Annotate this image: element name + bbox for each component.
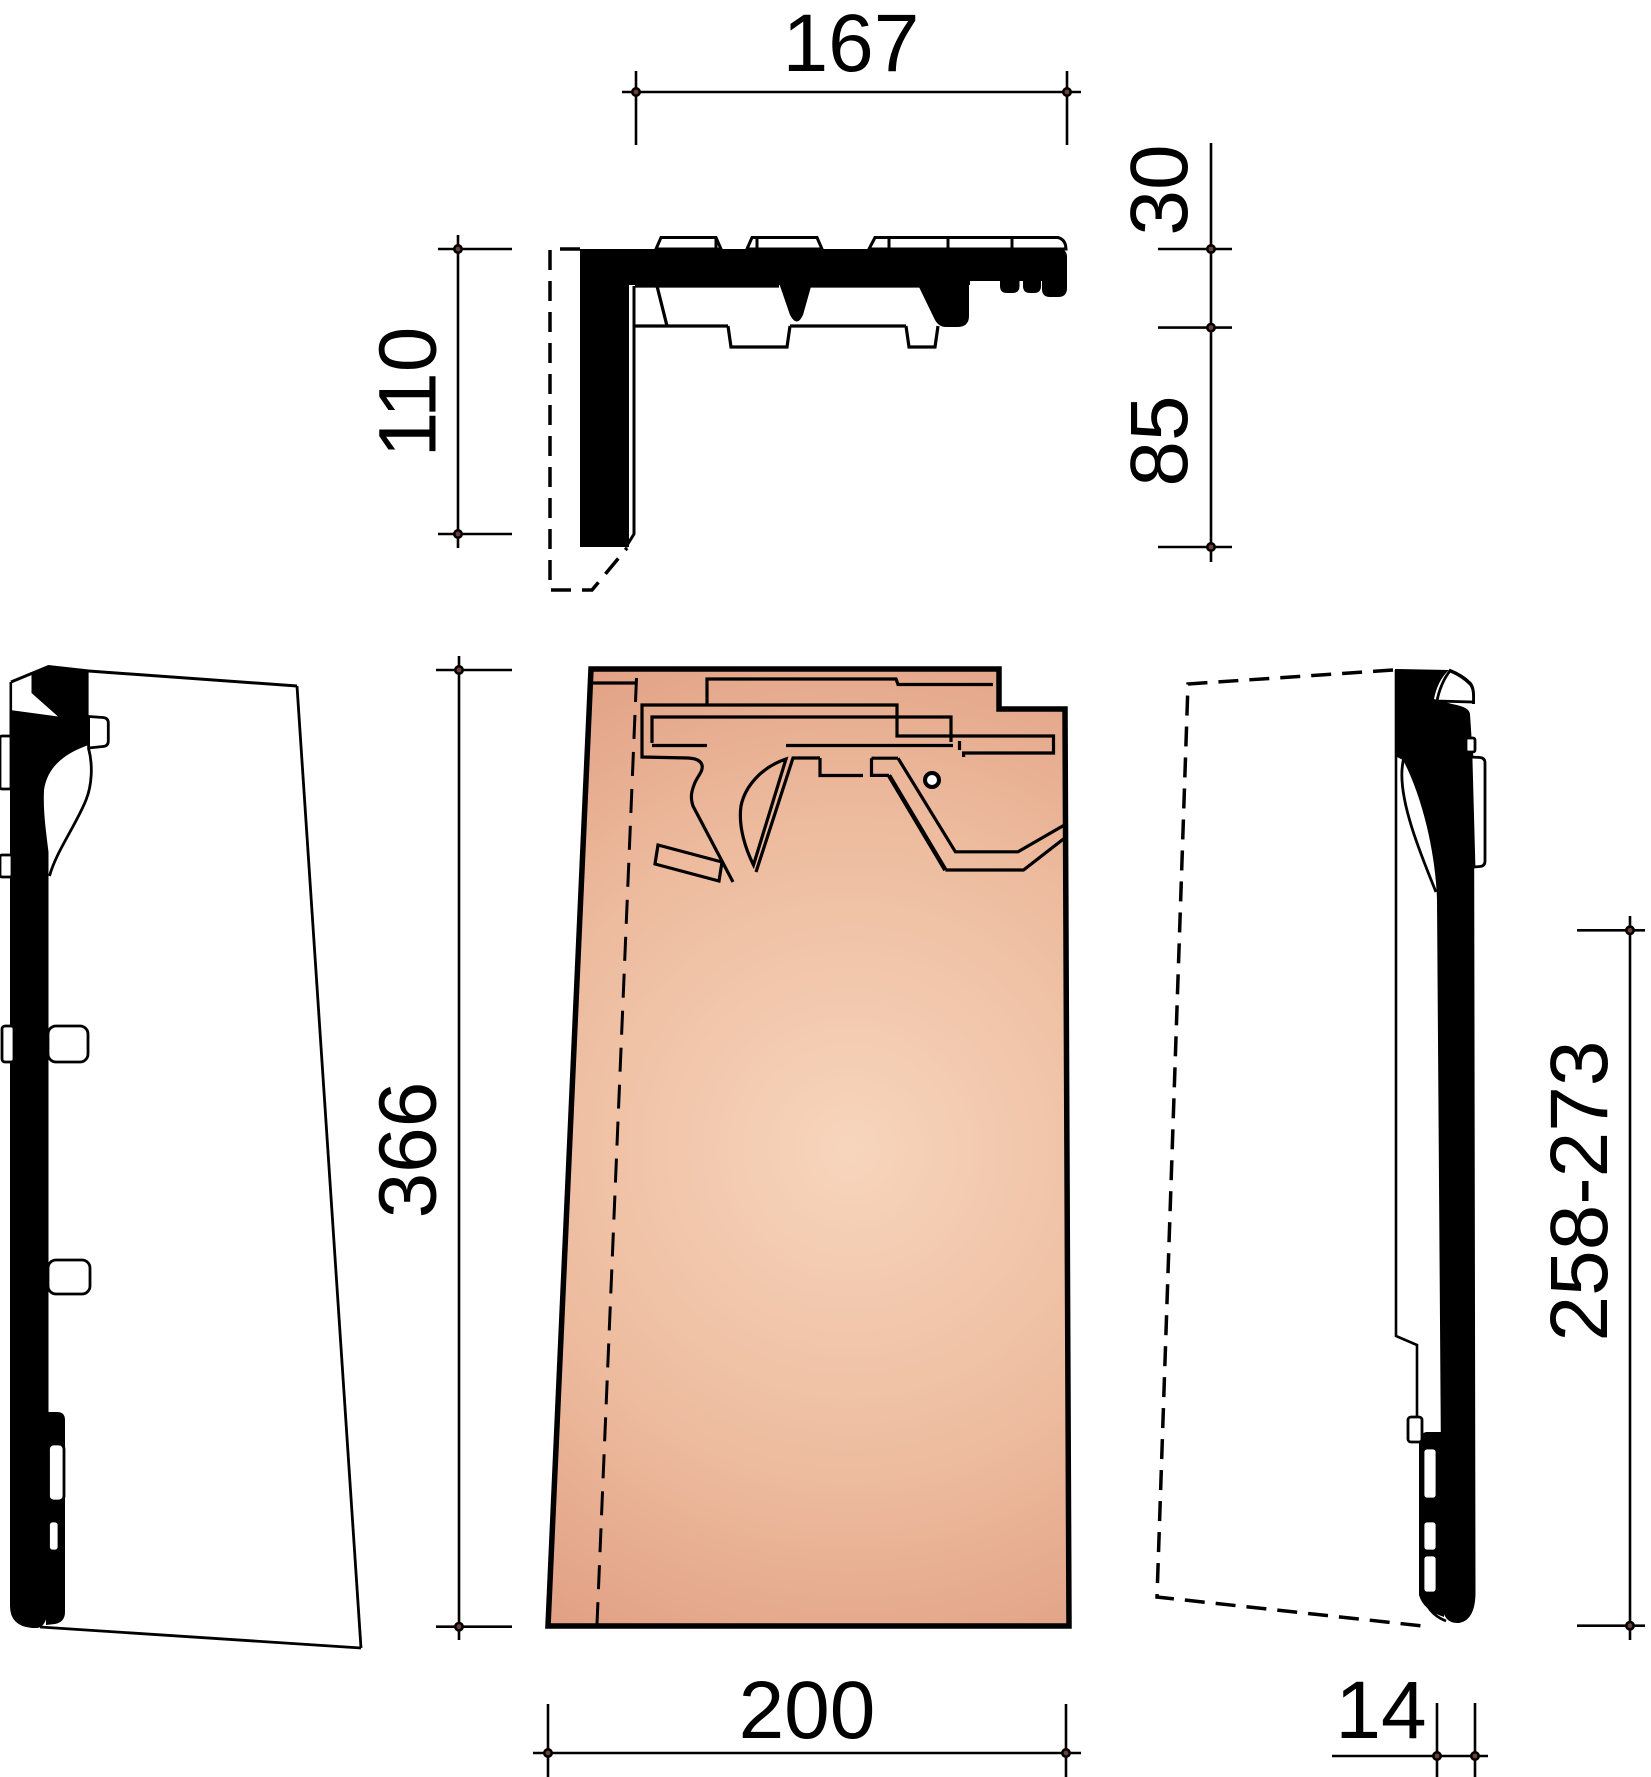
svg-text:110: 110: [363, 327, 454, 458]
svg-text:200: 200: [739, 1665, 876, 1756]
svg-text:14: 14: [1335, 1665, 1426, 1756]
svg-text:30: 30: [1114, 144, 1205, 235]
svg-text:85: 85: [1114, 395, 1205, 486]
svg-text:258-273: 258-273: [1534, 1041, 1625, 1342]
svg-text:167: 167: [783, 0, 920, 89]
svg-text:366: 366: [363, 1082, 454, 1219]
